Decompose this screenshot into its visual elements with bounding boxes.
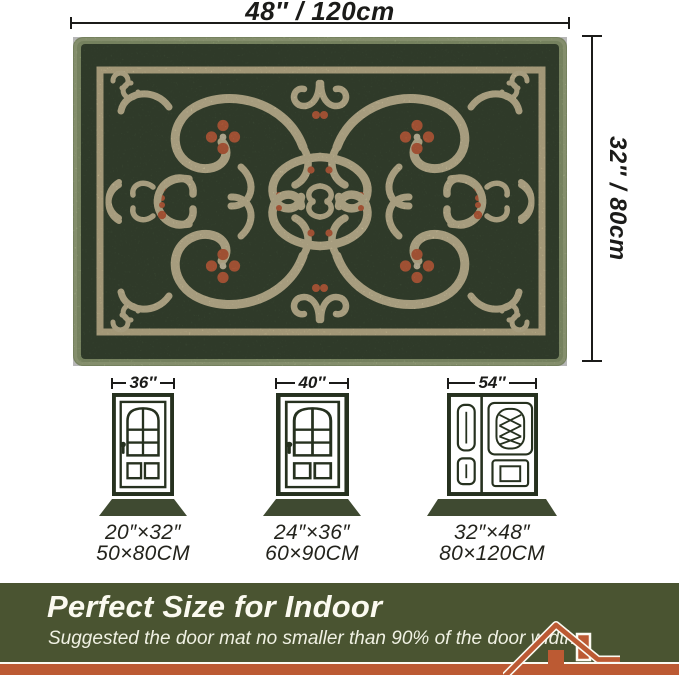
single-door-icon [276,393,349,496]
single-door-icon [112,393,174,496]
rug-width-measure-line-icon [70,17,570,29]
measure-line [160,382,173,384]
measure-end-tick [173,378,175,389]
measure-end-tick [568,17,570,29]
mat-size-inches: 32″×48″ [454,522,530,543]
door-size-option-1: 36″ 20″×32″ 50×80CM [83,376,203,564]
door-mat-icon [99,499,187,516]
mat-size-cm: 80×120CM [439,543,545,564]
door-width-label: 54″ [475,376,508,390]
door-mat-icon [263,499,361,516]
door-size-option-2: 40″ 24″×36″ 60×90CM [252,376,372,564]
measure-line [449,382,475,384]
door-width-label: 40″ [295,376,328,390]
banner-subtitle: Suggested the door mat no smaller than 9… [48,628,580,650]
door-mat-icon [427,499,557,516]
mat-size-inches: 20″×32″ [105,522,181,543]
measure-line [591,35,593,362]
house-roof-icon [503,619,620,675]
measure-line [329,382,347,384]
measure-end-tick [535,378,537,389]
mat-size-cm: 60×90CM [265,543,359,564]
measure-line [277,382,295,384]
double-door-icon [447,393,538,496]
mat-size-cm: 50×80CM [96,543,190,564]
door-width-measure-icon: 54″ [447,376,537,390]
rug-height-label: 32″ / 80cm [597,35,631,362]
rug-image [73,37,567,366]
product-size-infographic: 48″ / 120cm 32″ / 80cm [0,0,679,675]
measure-line [113,382,126,384]
banner-title: Perfect Size for Indoor [47,589,382,625]
measure-end-tick [347,378,349,389]
mat-size-inches: 24″×36″ [274,522,350,543]
door-width-measure-icon: 36″ [111,376,175,390]
door-size-option-3: 54″ 32″×48″ 80×120CM [425,376,559,564]
door-width-label: 36″ [126,376,159,390]
door-width-measure-icon: 40″ [275,376,349,390]
measure-line [70,22,570,24]
measure-line [509,382,535,384]
